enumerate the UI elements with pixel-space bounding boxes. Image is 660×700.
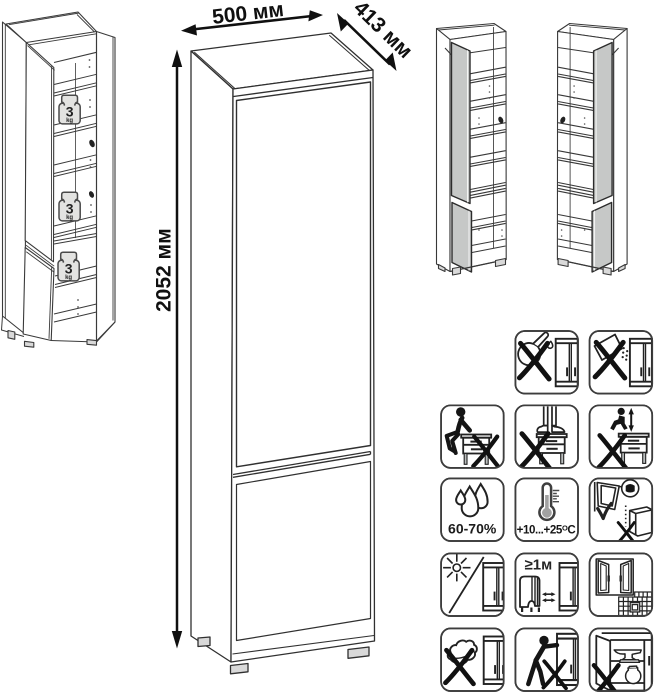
- svg-text:60-70%: 60-70%: [448, 521, 497, 537]
- svg-text:2052 мм: 2052 мм: [153, 228, 176, 312]
- svg-text:+10...+25OC: +10...+25OC: [517, 524, 577, 537]
- svg-text:≥1м: ≥1м: [525, 557, 553, 574]
